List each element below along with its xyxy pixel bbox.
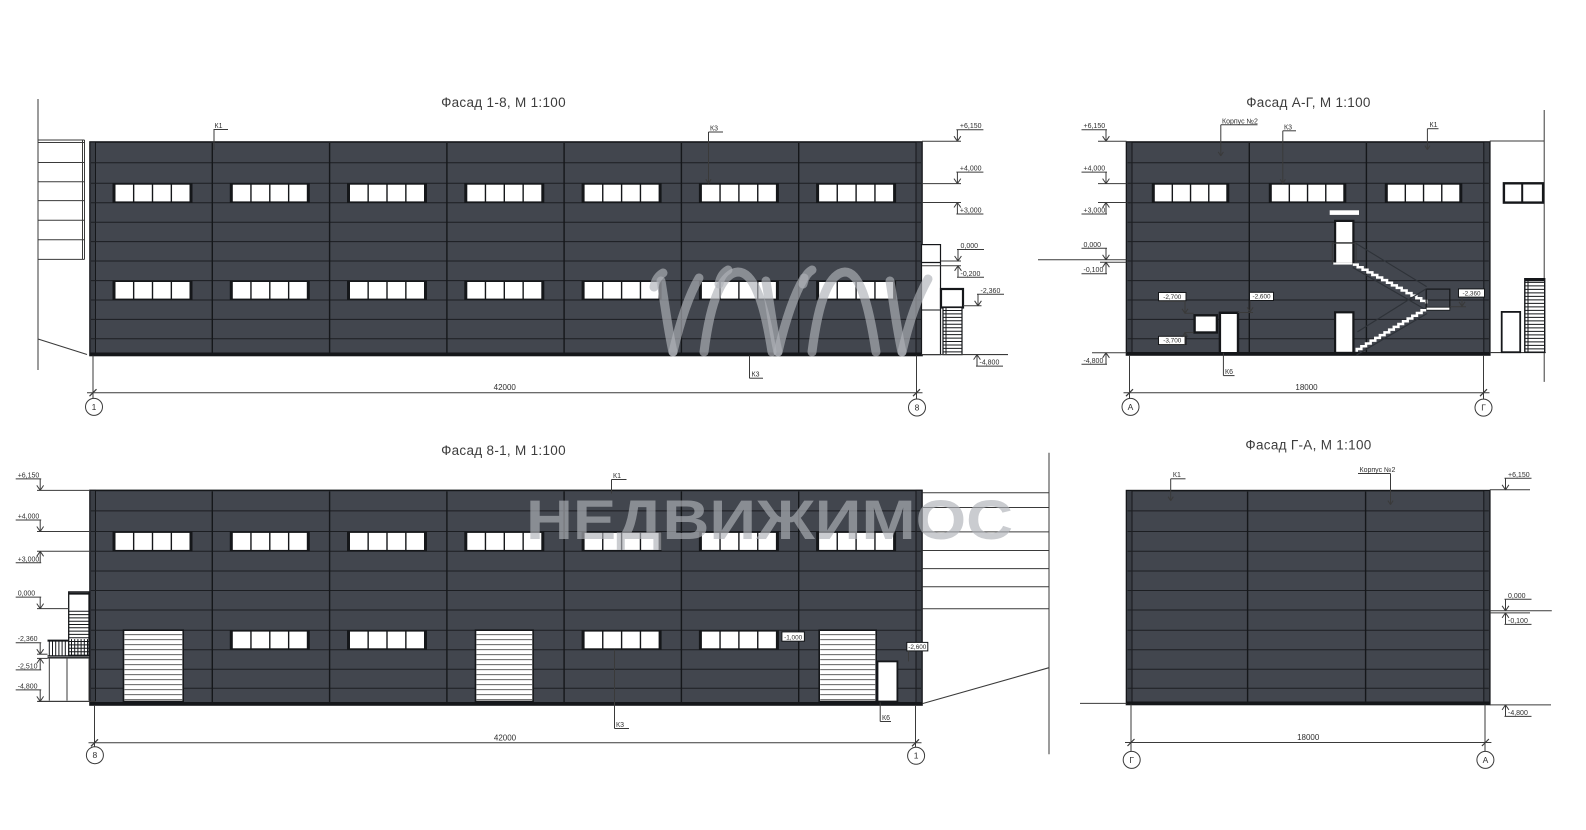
svg-text:К1: К1: [1430, 122, 1438, 129]
svg-text:Фасад А-Г, М 1:100: Фасад А-Г, М 1:100: [1246, 95, 1371, 110]
svg-text:К3: К3: [616, 722, 624, 729]
svg-text:-2,700: -2,700: [1163, 294, 1182, 301]
svg-text:К1: К1: [215, 123, 223, 130]
svg-text:+3,000: +3,000: [1084, 208, 1106, 215]
svg-text:42000: 42000: [494, 733, 517, 742]
svg-text:-0,100: -0,100: [1084, 267, 1104, 274]
svg-text:0,000: 0,000: [1084, 242, 1102, 249]
svg-text:0,000: 0,000: [18, 591, 36, 598]
svg-text:К6: К6: [882, 715, 890, 722]
svg-text:К6: К6: [1225, 369, 1233, 376]
svg-text:+3,000: +3,000: [18, 556, 40, 563]
svg-text:+4,000: +4,000: [1084, 166, 1106, 173]
svg-text:8: 8: [93, 750, 98, 760]
svg-text:42000: 42000: [494, 383, 517, 392]
svg-text:-4,800: -4,800: [980, 360, 1000, 367]
svg-text:Г: Г: [1129, 755, 1134, 765]
svg-text:-4,800: -4,800: [18, 683, 38, 690]
svg-text:-2,360: -2,360: [981, 288, 1001, 295]
svg-text:18000: 18000: [1295, 383, 1318, 392]
svg-text:Фасад 1-8, М 1:100: Фасад 1-8, М 1:100: [441, 95, 566, 110]
svg-text:1: 1: [914, 751, 919, 761]
svg-text:К3: К3: [1284, 124, 1292, 131]
svg-text:8: 8: [915, 402, 920, 412]
svg-text:+6,150: +6,150: [960, 123, 982, 130]
svg-text:-3,700: -3,700: [1163, 338, 1182, 345]
svg-text:К1: К1: [613, 473, 621, 480]
svg-text:Фасад 8-1, М 1:100: Фасад 8-1, М 1:100: [441, 443, 566, 458]
svg-text:1: 1: [92, 402, 97, 412]
svg-text:0,000: 0,000: [961, 243, 979, 250]
svg-text:Г: Г: [1481, 403, 1486, 413]
svg-text:-1,000: -1,000: [784, 634, 803, 641]
svg-text:-4,800: -4,800: [1084, 358, 1104, 365]
svg-text:-0,200: -0,200: [961, 271, 981, 278]
svg-text:-2,360: -2,360: [1462, 290, 1481, 297]
svg-text:0,000: 0,000: [1508, 593, 1526, 600]
svg-text:А: А: [1483, 755, 1489, 765]
svg-text:К1: К1: [1173, 472, 1181, 479]
svg-text:+6,150: +6,150: [1084, 123, 1106, 130]
svg-text:-2,360: -2,360: [18, 636, 38, 643]
svg-text:Фасад Г-А, М 1:100: Фасад Г-А, М 1:100: [1245, 438, 1371, 453]
svg-text:-4,800: -4,800: [1508, 710, 1528, 717]
svg-text:А: А: [1128, 402, 1134, 412]
svg-text:-2,600: -2,600: [1252, 294, 1271, 301]
svg-text:+4,000: +4,000: [18, 514, 40, 521]
svg-text:-0,100: -0,100: [1508, 618, 1528, 625]
svg-text:НЕДВИЖИМОС: НЕДВИЖИМОС: [526, 488, 1013, 551]
svg-text:+3,000: +3,000: [960, 208, 982, 215]
svg-text:+6,150: +6,150: [1508, 472, 1530, 479]
svg-text:К3: К3: [752, 372, 760, 379]
svg-text:К3: К3: [710, 125, 718, 132]
svg-text:-2,600: -2,600: [908, 644, 927, 651]
svg-text:+6,150: +6,150: [18, 472, 40, 479]
svg-text:-2,510: -2,510: [18, 663, 38, 670]
svg-text:+4,000: +4,000: [960, 166, 982, 173]
svg-text:18000: 18000: [1297, 733, 1320, 742]
